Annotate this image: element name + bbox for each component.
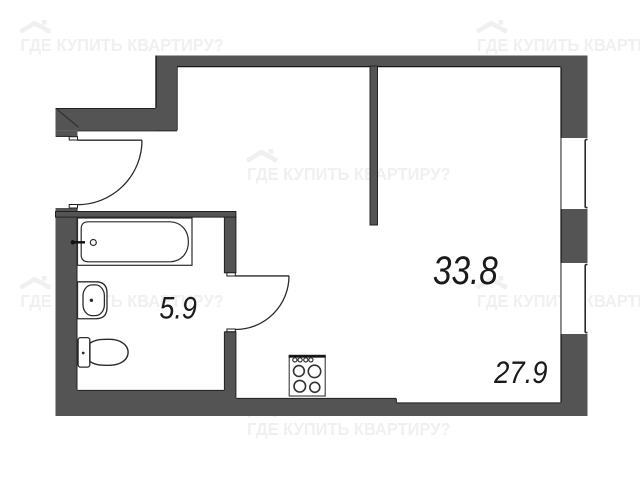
svg-text:27.9: 27.9 [493, 355, 547, 390]
svg-text:33.8: 33.8 [433, 248, 498, 293]
svg-text:5.9: 5.9 [159, 290, 196, 326]
